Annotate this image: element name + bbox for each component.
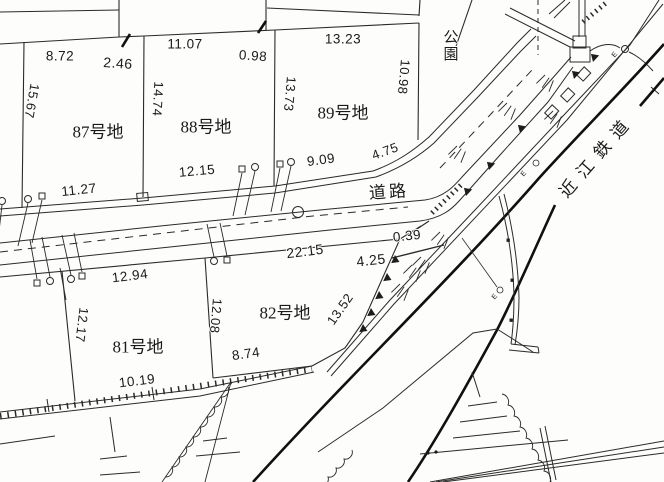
lot-label-82: 82号地	[260, 305, 311, 322]
measurement-14-74: 14.74	[151, 81, 166, 117]
map-linework	[0, 0, 664, 482]
utility-poles	[0, 159, 304, 301]
measurement-10-98: 10.98	[396, 59, 412, 95]
measurement-11-07: 11.07	[167, 37, 202, 51]
lot-label-89: 89号地	[318, 105, 369, 122]
road-lines	[0, 29, 573, 265]
measurement-4-25: 4.25	[356, 252, 387, 269]
measurement-2-46: 2.46	[103, 55, 133, 71]
measurement-13-23: 13.23	[325, 32, 361, 46]
measurement-13-73: 13.73	[282, 76, 298, 112]
park-label: 公園	[442, 29, 457, 63]
measurement-0-98: 0.98	[238, 48, 267, 63]
road-label: 道路	[368, 182, 409, 202]
cadastral-map: 8.72 2.46 11.07 0.98 13.23 10.98 15.67 1…	[0, 0, 664, 482]
lot-label-81: 81号地	[113, 339, 164, 356]
measurement-8-72: 8.72	[46, 49, 74, 63]
road-centerline-dashed	[0, 207, 408, 252]
lot-label-88: 88号地	[181, 119, 232, 136]
terrain-marks	[100, 329, 664, 482]
stone-wall-scallops	[162, 382, 551, 482]
railway-tracks	[253, 44, 664, 482]
measurement-0-39: 0.39	[392, 228, 422, 244]
hatched-lane	[0, 366, 314, 444]
lot-label-87: 87号地	[73, 124, 124, 141]
measurement-12-15: 12.15	[178, 163, 215, 180]
utility-leaders	[462, 160, 539, 293]
measurement-12-08: 12.08	[208, 298, 224, 334]
